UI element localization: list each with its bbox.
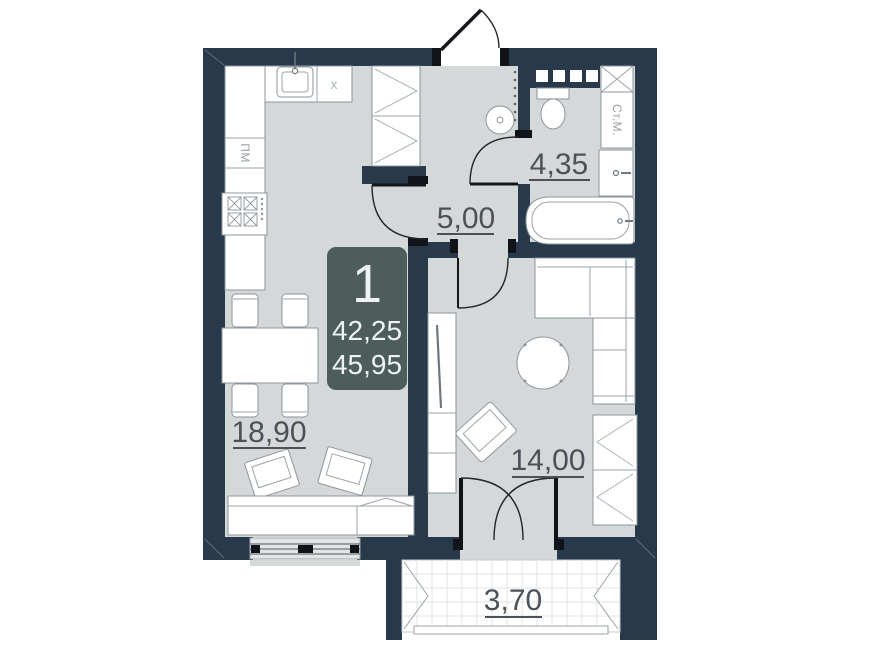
wall-bottom-2	[357, 537, 460, 560]
opening-main-room	[458, 242, 508, 258]
unit-area-bottom: 45,95	[332, 349, 402, 380]
wall-right	[635, 48, 657, 560]
wall-top-right	[505, 48, 657, 66]
washing-machine: Ст.М.	[601, 66, 633, 148]
cooktop-mark: x	[331, 76, 338, 92]
kitchen-counter-left	[225, 66, 265, 290]
window-cap-middle	[298, 545, 313, 553]
label-main-room: 14,00	[510, 444, 585, 477]
washing-machine-label: Ст.М.	[610, 104, 624, 136]
sofa	[228, 496, 414, 535]
pouf	[486, 106, 514, 134]
label-hallway: 5,00	[437, 202, 495, 235]
unit-badge: 1 42,25 45,95	[327, 247, 407, 390]
balcony-pillar-right	[620, 560, 657, 640]
tv-stand	[428, 313, 456, 493]
unit-area-top: 42,25	[332, 315, 402, 346]
window-living	[250, 538, 360, 566]
bathtub	[526, 197, 634, 244]
floor-plan: x ПМ	[0, 0, 886, 670]
dining-table	[222, 328, 318, 383]
window-sill-outside	[250, 560, 360, 566]
floor-plan-page: x ПМ	[0, 0, 886, 670]
wall-living-room-divider	[408, 238, 428, 537]
label-balcony: 3,70	[484, 584, 542, 617]
round-table	[517, 337, 569, 389]
bathroom-sink	[599, 150, 633, 196]
label-bathroom: 4,35	[530, 148, 588, 181]
wall-bottom-3	[557, 537, 657, 560]
wall-hall-bath-1	[518, 66, 530, 137]
dishwasher-label: ПМ	[238, 143, 252, 163]
window-cap-right	[350, 545, 359, 553]
vent-shaft	[530, 66, 600, 88]
main-room-wardrobe	[593, 415, 637, 525]
opening-bathroom	[518, 137, 530, 184]
balcony-rail	[414, 626, 608, 634]
label-kitchen-living: 18,90	[231, 416, 306, 449]
window-cap-left	[251, 545, 260, 553]
hallway-wardrobe	[372, 66, 420, 166]
wall-top-left	[203, 48, 440, 66]
unit-rooms-count: 1	[352, 254, 382, 314]
stove	[222, 193, 267, 235]
opening-balcony	[460, 537, 557, 560]
wall-bottom-1	[203, 537, 253, 560]
wall-left	[203, 48, 225, 560]
entrance-door	[432, 10, 509, 66]
balcony-pillar-left	[386, 560, 402, 640]
